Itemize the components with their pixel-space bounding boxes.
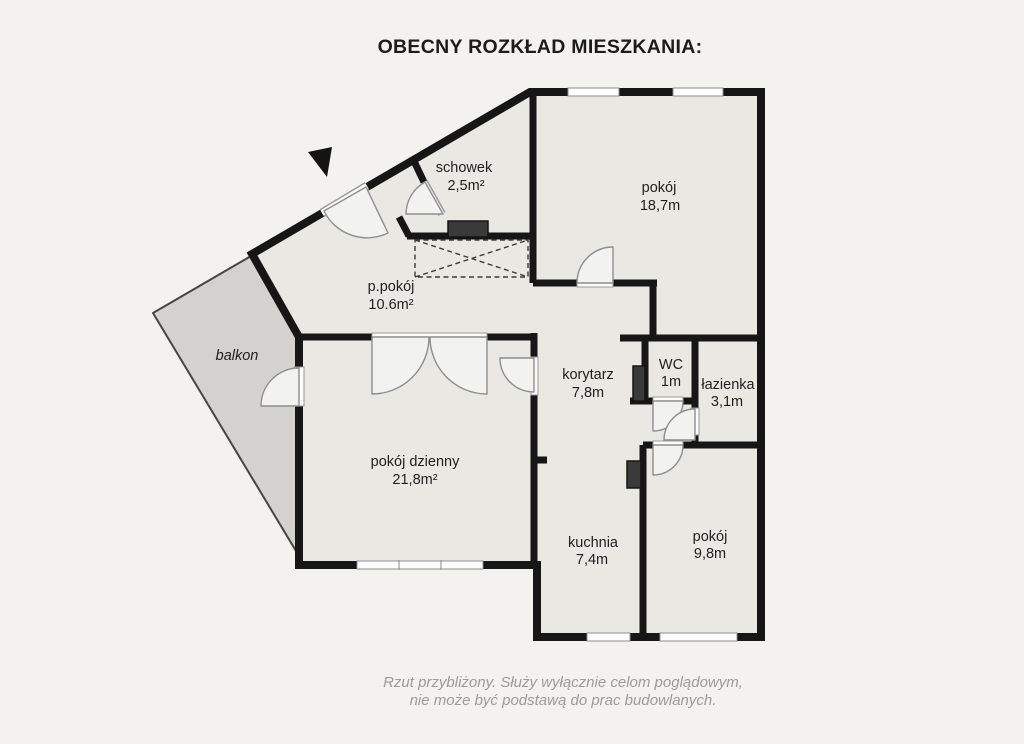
footer-disclaimer-line2: nie może być podstawą do prac budowlanyc… xyxy=(410,692,717,709)
room-label-pokoj-dolny: pokój xyxy=(693,529,728,545)
page-title: OBECNY ROZKŁAD MIESZKANIA: xyxy=(378,36,703,58)
room-area-korytarz: 7,8m xyxy=(572,385,604,401)
kuchnia-shaft xyxy=(627,461,641,488)
room-area-kuchnia: 7,4m xyxy=(576,552,608,568)
window-kuchnia xyxy=(587,633,630,641)
room-area-pokoj-gorny: 18,7m xyxy=(640,198,680,214)
wc-shaft xyxy=(633,366,645,401)
window-pokoj-gorny-2 xyxy=(673,88,723,96)
room-area-lazienka: 3,1m xyxy=(711,394,743,410)
room-area-pokoj-dolny: 9,8m xyxy=(694,546,726,562)
room-label-schowek: schowek xyxy=(436,160,493,176)
room-area-p-pokoj: 10.6m² xyxy=(368,297,413,313)
room-label-korytarz: korytarz xyxy=(562,367,614,383)
room-label-wc: WC xyxy=(659,357,683,373)
room-area-pokoj-dzienny: 21,8m² xyxy=(392,472,437,488)
window-pokoj-dolny xyxy=(660,633,737,641)
room-label-pokoj-dzienny: pokój dzienny xyxy=(371,454,460,470)
room-label-balkon: balkon xyxy=(216,348,259,364)
window-pokoj-gorny-1 xyxy=(568,88,619,96)
floor-plan-page: OBECNY ROZKŁAD MIESZKANIA: xyxy=(0,0,1024,744)
room-label-p-pokoj: p.pokój xyxy=(368,279,415,295)
floor-plan-svg: OBECNY ROZKŁAD MIESZKANIA: xyxy=(0,0,1024,744)
room-area-wc: 1m xyxy=(661,374,681,390)
room-label-lazienka: łazienka xyxy=(701,377,755,393)
room-area-schowek: 2,5m² xyxy=(447,178,484,194)
window-pokoj-dzienny xyxy=(357,561,483,569)
room-label-pokoj-gorny: pokój xyxy=(642,180,677,196)
schowek-shaft xyxy=(448,221,488,237)
footer-disclaimer-line1: Rzut przybliżony. Służy wyłącznie celom … xyxy=(383,674,743,691)
room-label-kuchnia: kuchnia xyxy=(568,535,619,551)
